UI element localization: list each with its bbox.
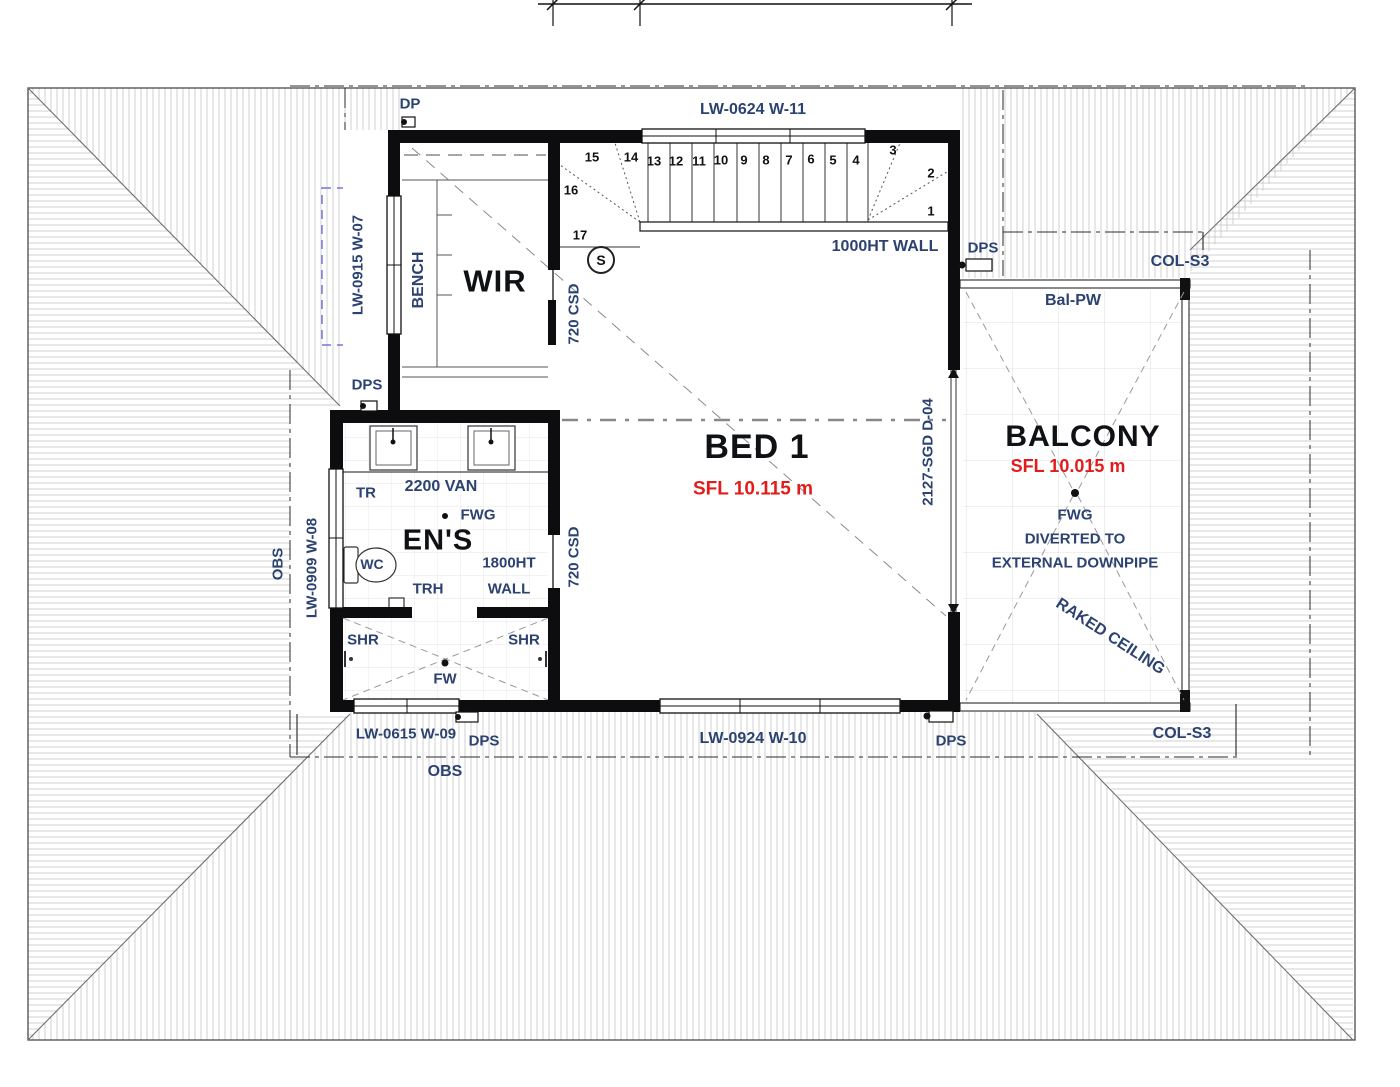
stair-number: 8 [762,154,769,167]
room-label-balcony: BALCONY [1005,422,1160,452]
label-dps-bottom-left: DPS [469,734,500,749]
balcony-fwg-point [1071,489,1079,497]
label-fwg-ens: FWG [461,508,496,523]
label-dps-bottom-right: DPS [936,734,967,749]
label-shr-left: SHR [347,633,379,648]
label-ens-csd: 720 CSD [567,527,582,588]
label-obs-bottom: OBS [428,764,463,780]
label-window-w10: LW-0924 W-10 [700,731,807,747]
label-dps-left: DPS [352,378,383,393]
label-fw: FW [433,672,456,687]
stair-number: 9 [740,154,747,167]
stair-number: 6 [807,153,814,166]
stair-number: 3 [889,144,896,157]
label-tr: TR [356,486,376,501]
room-label-ens: EN'S [403,527,474,556]
label-bench: BENCH [411,252,427,309]
stair-number: 10 [714,154,728,167]
dimension-line [538,0,972,26]
stair-number: 17 [573,229,587,242]
label-dps-balcony: DPS [968,241,999,256]
label-1000ht-wall: 1000HT WALL [832,239,939,255]
label-balcony-sfl: SFL 10.015 m [1011,457,1126,475]
stair-number: 11 [692,155,706,168]
label-fwg-note-2: DIVERTED TO [1025,532,1126,547]
label-fwg-note-1: FWG [1058,508,1093,523]
room-label-bed1: BED 1 [704,430,809,464]
stair-number: 15 [585,151,599,164]
label-shr-right: SHR [508,633,540,648]
label-1800ht: 1800HT [482,556,535,571]
stair-balustrade-1000ht [640,222,948,231]
label-window-w11: LW-0624 W-11 [700,102,806,118]
stair-number: 14 [624,151,638,164]
stair-number: 4 [852,154,859,167]
label-bal-pw: Bal-PW [1045,293,1101,309]
smoke-detector-symbol: S [587,246,615,274]
stair-number: 2 [927,167,934,180]
label-col-s3-bottom: COL-S3 [1153,726,1212,742]
label-col-s3-top: COL-S3 [1151,254,1210,270]
floor-plan-page: DP LW-0624 W-11 1 2 3 4 5 6 7 8 9 10 11 … [0,0,1400,1087]
label-wc: WC [360,557,383,571]
stair-number: 5 [829,154,836,167]
label-dp: DP [400,97,421,112]
label-window-w08: LW-0909 W-08 [305,518,320,618]
label-window-w09: LW-0615 W-09 [356,727,456,742]
label-sgd-door: 2127-SGD D-04 [921,398,936,506]
label-trh: TRH [413,582,444,597]
stair-number: 1 [927,205,934,218]
stair-number: 12 [669,155,683,168]
stair-number: 16 [564,184,578,197]
label-wir-csd: 720 CSD [567,284,582,345]
label-obs-left: OBS [271,548,286,581]
label-window-w07: LW-0915 W-07 [351,215,366,315]
label-2200-van: 2200 VAN [405,479,478,495]
stair-number: 13 [647,155,661,168]
balcony-post-se [1180,690,1190,712]
stair-number: 7 [785,154,792,167]
label-fwg-note-3: EXTERNAL DOWNPIPE [992,556,1158,571]
label-1800ht-wall: WALL [488,582,531,597]
label-bed1-sfl: SFL 10.115 m [693,480,813,499]
room-label-wir: WIR [463,266,526,297]
